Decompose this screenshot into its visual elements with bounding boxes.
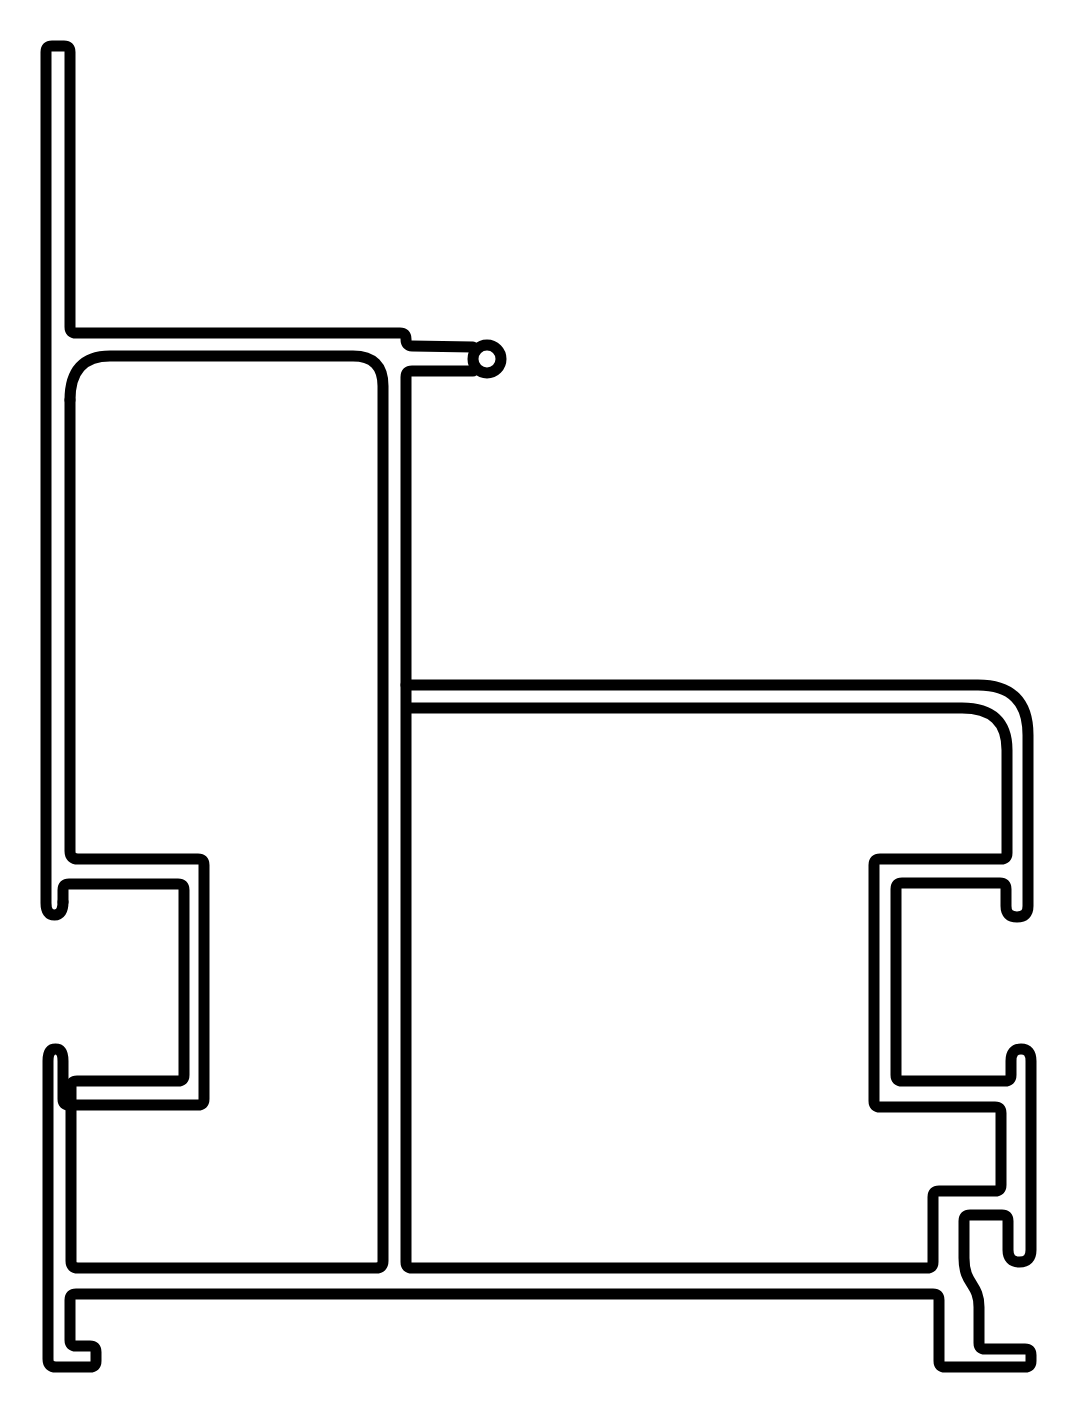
drawing-canvas [0, 0, 1080, 1415]
main-chamber-and-left-channel [63, 356, 383, 1268]
gasket-bead [473, 345, 501, 373]
stub-underside-center-web-and-right-cavity [406, 371, 1007, 1268]
outer-boundary-arm-hooks-feet-and-base [48, 400, 1031, 1367]
extrusion-profile-cross-section-drawing [0, 0, 1080, 1415]
